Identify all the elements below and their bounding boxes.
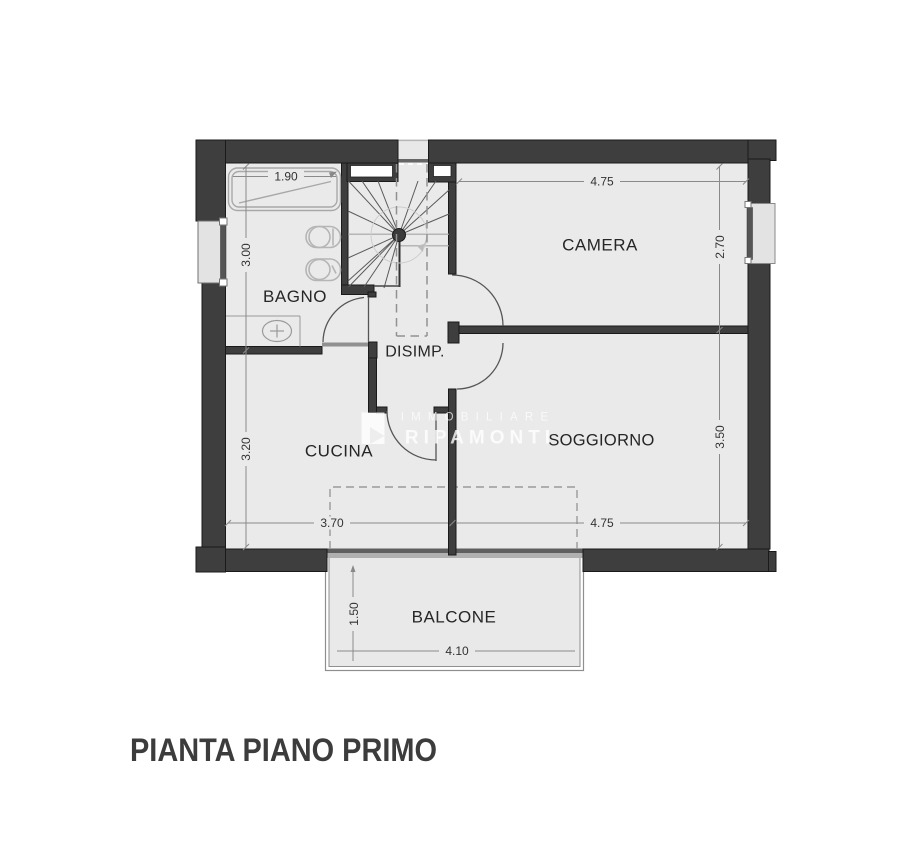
svg-text:SOGGIORNO: SOGGIORNO [548,432,654,450]
svg-text:BALCONE: BALCONE [412,608,497,627]
svg-text:BAGNO: BAGNO [263,287,327,306]
svg-text:4.75: 4.75 [590,175,614,189]
svg-text:RIPAMONTI: RIPAMONTI [405,428,555,449]
svg-text:3.20: 3.20 [239,437,253,461]
svg-text:3.50: 3.50 [713,425,727,449]
svg-text:CAMERA: CAMERA [562,236,638,255]
svg-text:DISIMP.: DISIMP. [385,344,445,361]
svg-text:3.70: 3.70 [320,516,344,530]
svg-text:1.50: 1.50 [347,602,361,626]
svg-text:CUCINA: CUCINA [305,442,373,461]
svg-text:PIANTA PIANO PRIMO: PIANTA PIANO PRIMO [130,732,437,768]
svg-text:3.00: 3.00 [239,243,253,267]
svg-text:1.90: 1.90 [274,170,298,184]
svg-text:4.10: 4.10 [445,644,469,658]
svg-text:2.70: 2.70 [713,235,727,259]
svg-text:IMMOBILIARE: IMMOBILIARE [401,412,556,424]
svg-text:4.75: 4.75 [590,516,614,530]
